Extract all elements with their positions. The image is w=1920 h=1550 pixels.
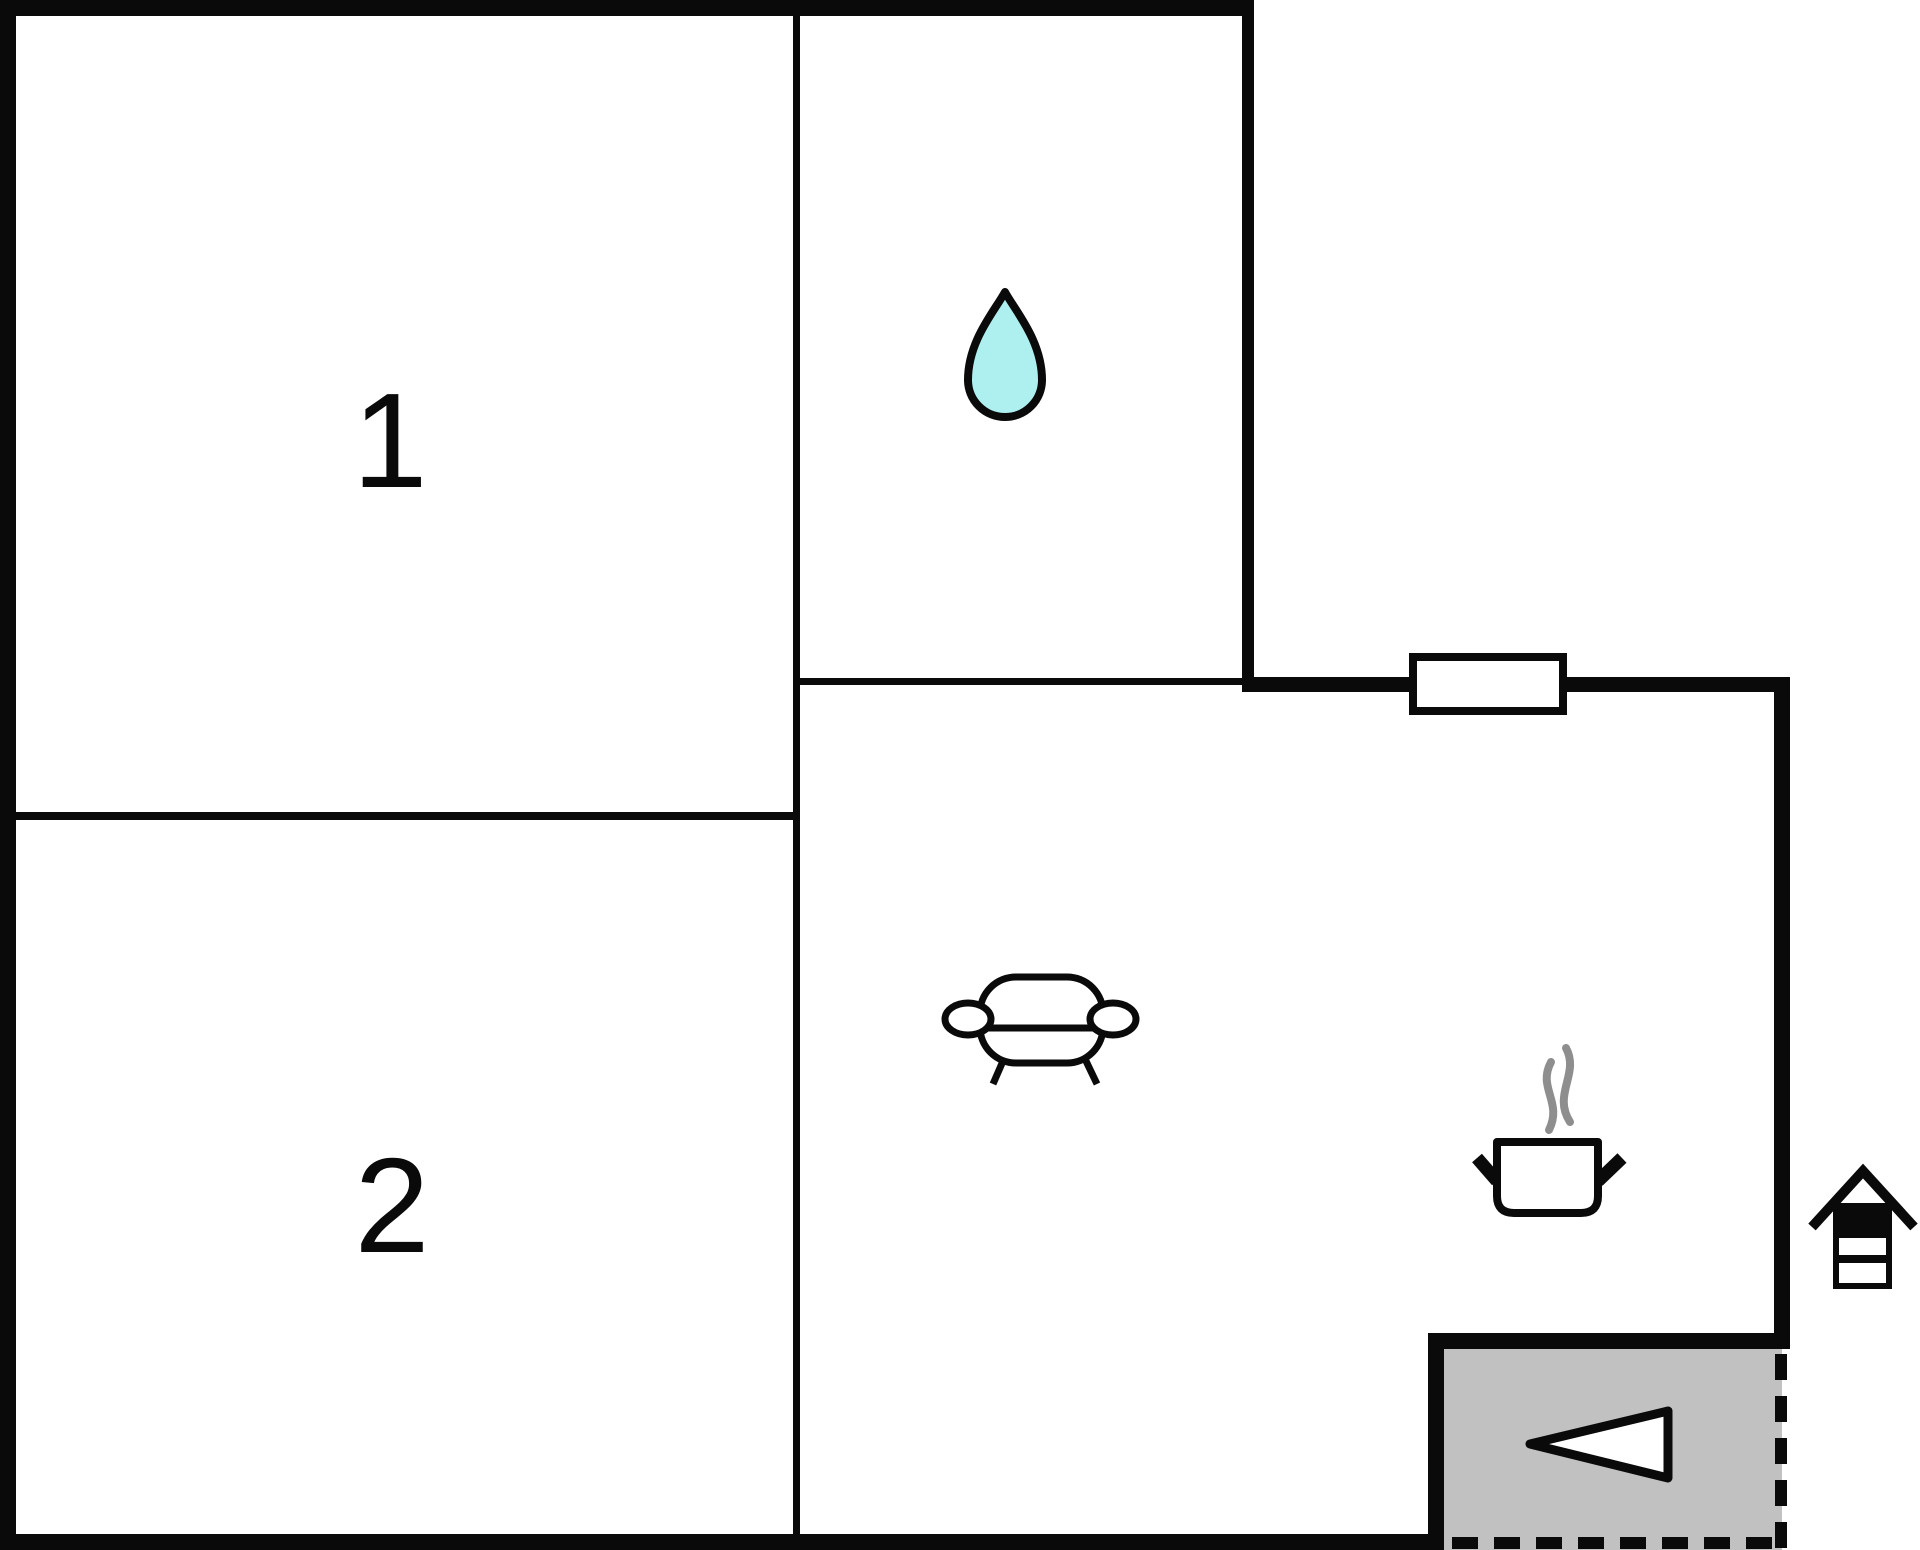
wall-top-exterior — [0, 0, 1254, 16]
wall-bathroom-right — [1242, 0, 1254, 692]
window — [1413, 657, 1563, 711]
wall-interior-vertical — [793, 16, 800, 1534]
house-top-band — [1836, 1206, 1889, 1238]
floor-plan-drawing: 1 2 — [0, 0, 1920, 1550]
house-middle-band — [1836, 1255, 1889, 1263]
wall-right-exterior — [1774, 677, 1790, 1349]
room-2-label: 2 — [354, 1130, 429, 1281]
wall-left-exterior — [0, 0, 16, 1550]
floor-plan-page: 1 2 — [0, 0, 1920, 1550]
wall-top-right-left-of-window — [1242, 677, 1413, 692]
wall-bathroom-bottom — [793, 678, 1254, 685]
pot-body — [1497, 1142, 1598, 1213]
wall-top-right-right-of-window — [1563, 677, 1790, 692]
sofa-body — [980, 977, 1103, 1063]
plan-background — [0, 0, 1920, 1550]
wall-room1-room2-divider — [16, 812, 793, 820]
wall-bottom-exterior — [0, 1534, 1443, 1550]
room-1-label: 1 — [352, 365, 427, 516]
sofa-armrest-right — [1090, 1003, 1136, 1035]
sofa-armrest-left — [945, 1003, 991, 1035]
wall-entrance-top — [1428, 1333, 1790, 1349]
wall-entrance-left — [1428, 1333, 1444, 1550]
